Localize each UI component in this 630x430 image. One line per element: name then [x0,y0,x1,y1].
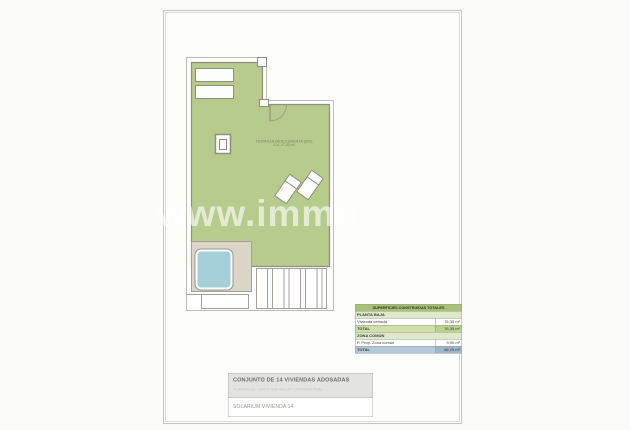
planter-rect [196,69,234,82]
title-block-header: CONJUNTO DE 14 VIVIENDAS ADOSADAS PLANOS… [229,374,373,399]
surfaces-table-header: SUPERFICIES CONSTRUIDAS TOTALES [355,304,462,311]
row-label: Vivienda cerrada [355,318,435,325]
step-box [202,295,249,309]
planter-rect [196,86,234,99]
project-title: CONJUNTO DE 14 VIVIENDAS ADOSADAS [233,377,368,383]
table-row: TOTAL 86,25 m² [355,346,462,353]
table-row: ZONA COMÚN [355,332,462,339]
drawing-title: SOLARIUM VIVIENDA 14 [233,404,368,410]
row-label: PLANTA BAJA [355,311,462,318]
title-block: CONJUNTO DE 14 VIVIENDAS ADOSADAS PLANOS… [228,373,373,417]
title-block-body: SOLARIUM VIVIENDA 14 [229,398,373,417]
row-value: 86,25 m² [435,346,462,353]
terrace-room-label: TERRAZA DESCUBIERTA (8%) S.U. 47,30 m² [234,139,334,148]
row-value: 9,90 m² [435,339,462,346]
disclaimer-text: PLANOS DE VENTA SIN VALOR CONTRACTUAL [233,387,368,392]
watermark-text: www.immo [157,193,497,235]
door-jamb [260,100,269,107]
skylight-symbol [216,135,231,154]
terrace-label-area: S.U. 47,30 m² [234,144,334,148]
row-label: P. Prop. Zona común [355,339,435,346]
row-label: TOTAL [355,325,435,332]
surfaces-table: SUPERFICIES CONSTRUIDAS TOTALES PLANTA B… [355,304,462,354]
row-label: TOTAL [355,346,435,353]
row-value: 76,35 m² [435,318,462,325]
table-row: Vivienda cerrada 76,35 m² [355,318,462,325]
table-row: P. Prop. Zona común 9,90 m² [355,339,462,346]
table-row: PLANTA BAJA [355,311,462,318]
row-label: ZONA COMÚN [355,332,462,339]
plan-sheet-page: { "watermark": "www.immo", "plan": { "ro… [0,0,630,430]
pool [197,251,232,289]
surfaces-table-title: SUPERFICIES CONSTRUIDAS TOTALES [355,304,462,311]
table-row: TOTAL 76,35 m² [355,325,462,332]
column-square [258,58,267,67]
staircase [257,269,327,309]
row-value: 76,35 m² [435,325,462,332]
